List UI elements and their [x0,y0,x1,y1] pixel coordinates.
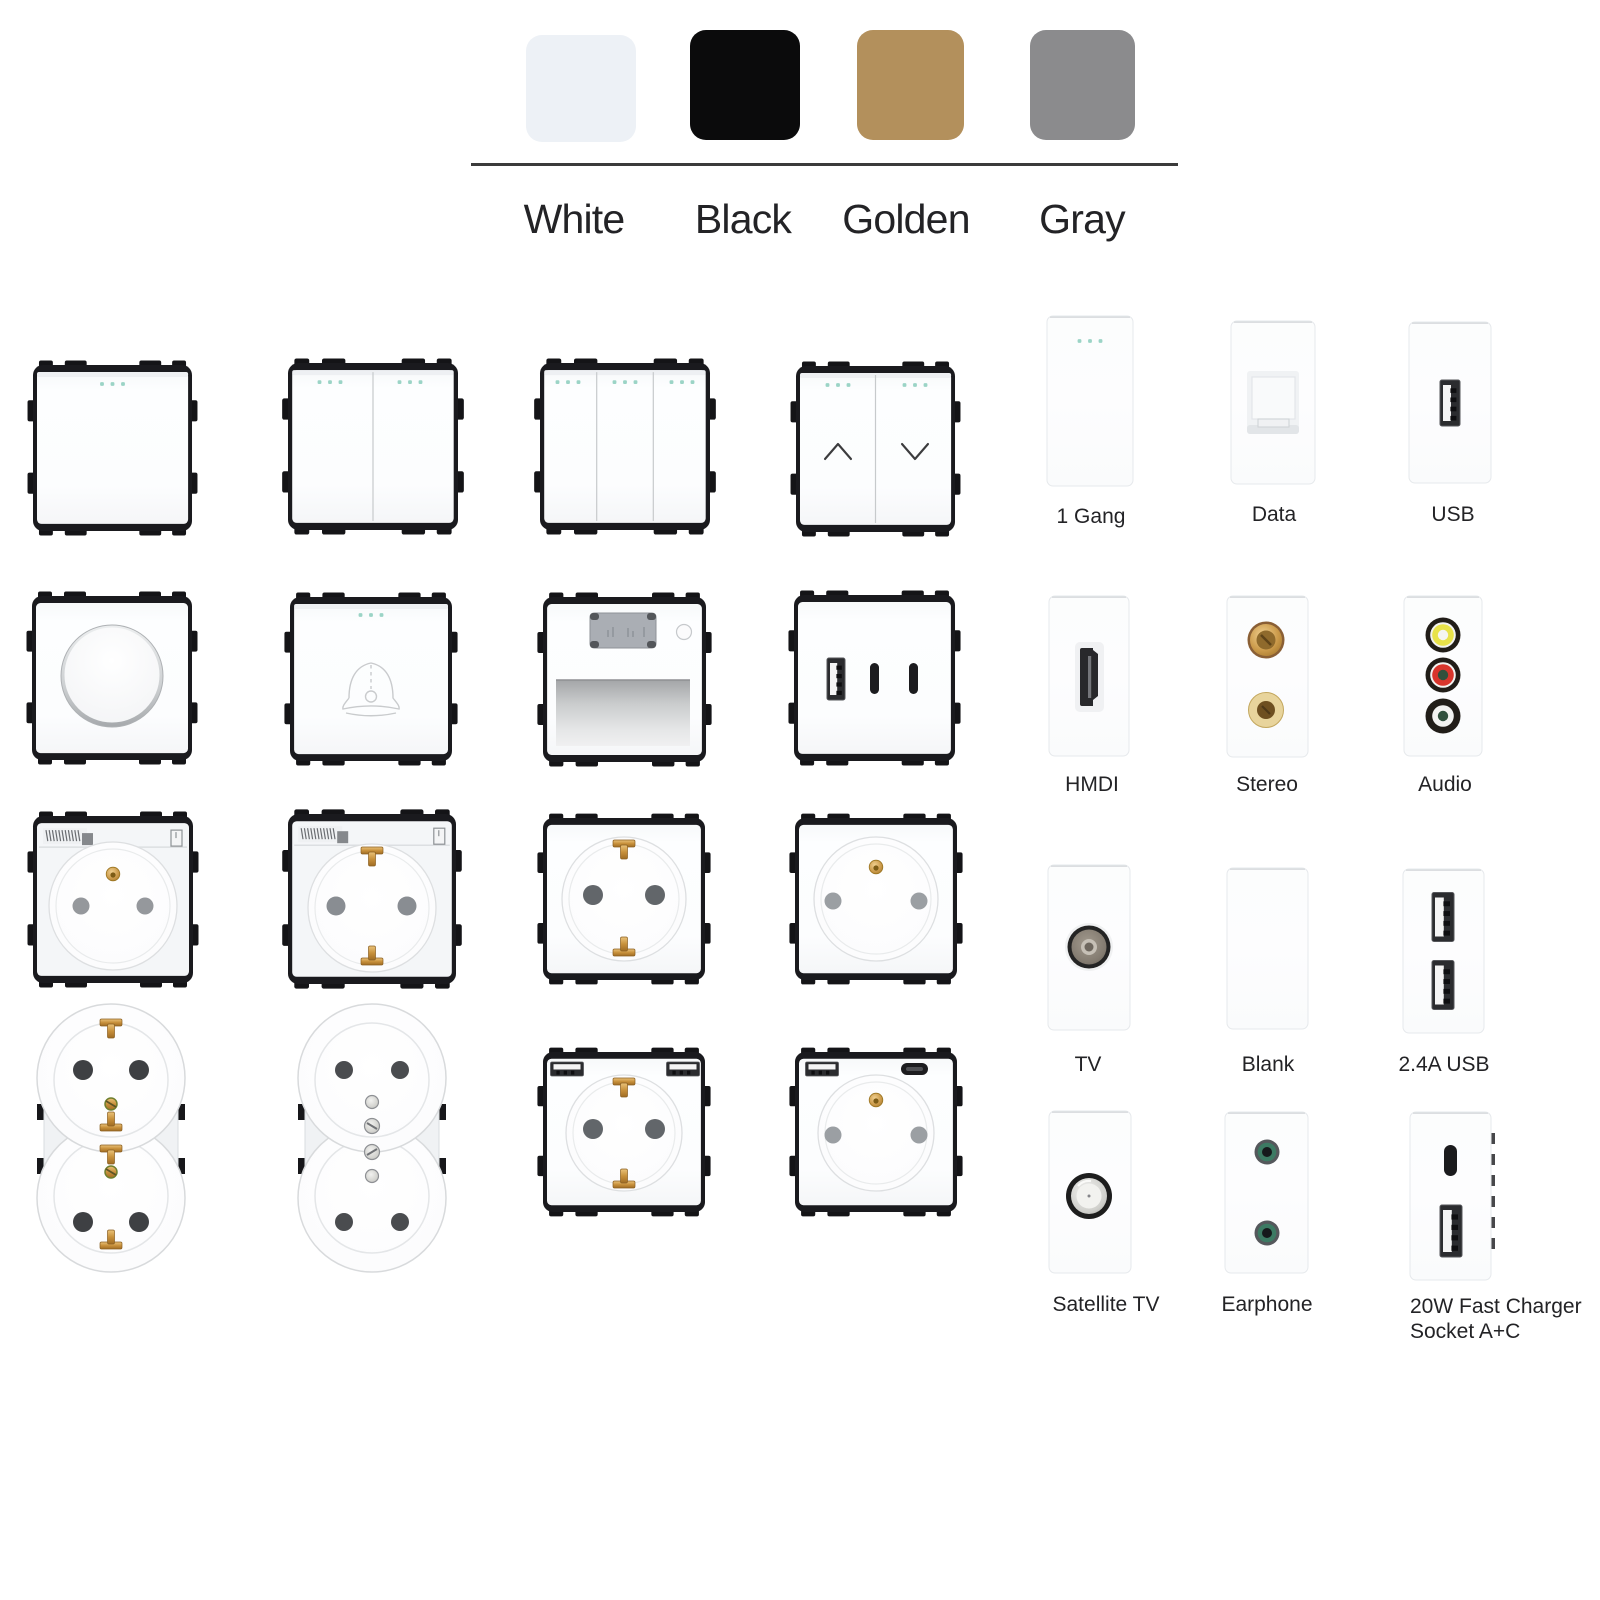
svg-text:TV: TV [1075,1053,1102,1076]
svg-text:Stereo: Stereo [1236,773,1298,796]
svg-text:HMDI: HMDI [1065,773,1119,796]
svg-text:Black: Black [695,196,793,242]
svg-text:1 Gang: 1 Gang [1057,505,1126,528]
svg-text:Data: Data [1252,503,1297,526]
svg-text:Gray: Gray [1039,196,1126,242]
svg-text:2.4A USB: 2.4A USB [1398,1053,1489,1076]
svg-text:Audio: Audio [1418,773,1472,796]
svg-text:Satellite TV: Satellite TV [1053,1293,1160,1316]
svg-text:White: White [524,196,625,242]
svg-text:Blank: Blank [1242,1053,1295,1076]
svg-text:Earphone: Earphone [1221,1293,1312,1316]
svg-text:Golden: Golden [842,196,969,242]
svg-text:USB: USB [1431,503,1474,526]
svg-text:Socket A+C: Socket A+C [1410,1320,1520,1343]
svg-text:20W Fast Charger: 20W Fast Charger [1410,1295,1582,1318]
